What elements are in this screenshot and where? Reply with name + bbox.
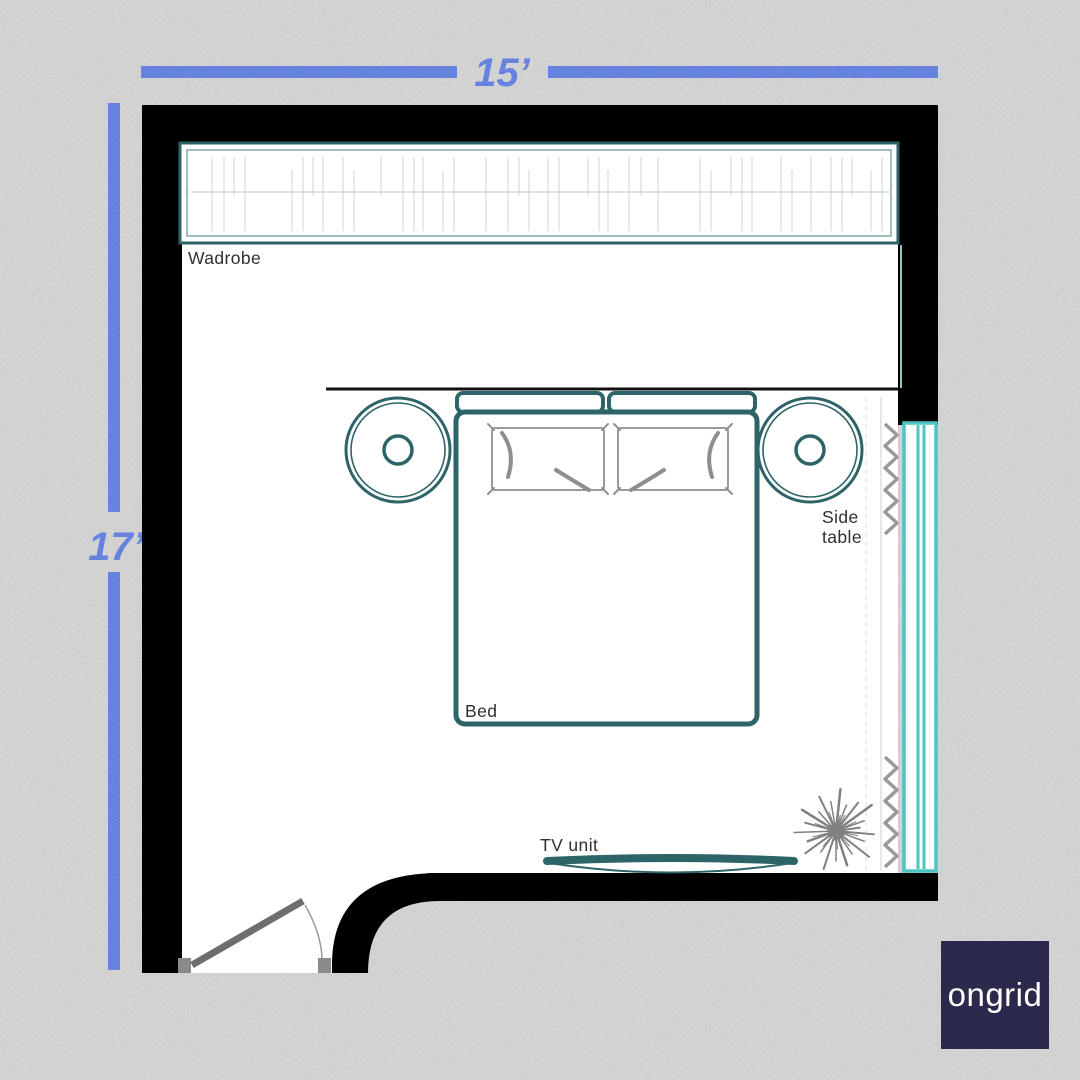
wall-bottom bbox=[428, 873, 938, 901]
side-table-left bbox=[346, 398, 450, 502]
logo: ongrid bbox=[941, 941, 1049, 1049]
side-table-left-knob bbox=[384, 436, 412, 464]
floorplan-canvas: 15’ 17’ Wadrobe bbox=[0, 0, 1080, 1080]
side-table-right bbox=[758, 398, 862, 502]
pillow-right bbox=[618, 428, 728, 490]
tv-unit-label: TV unit bbox=[540, 835, 598, 855]
wall-left bbox=[142, 105, 182, 973]
side-table-right-knob bbox=[796, 436, 824, 464]
tv-unit-top bbox=[547, 858, 794, 861]
door-jamb-left bbox=[178, 958, 191, 973]
bed-label: Bed bbox=[465, 701, 497, 721]
logo-text: ongrid bbox=[948, 976, 1043, 1013]
wardrobe-outline bbox=[180, 143, 898, 243]
floorplan-svg: 15’ 17’ Wadrobe bbox=[0, 0, 1080, 1080]
wall-right bbox=[898, 105, 938, 425]
headboard-left bbox=[457, 393, 603, 412]
headboard-right bbox=[609, 393, 755, 412]
door-jamb-right bbox=[318, 958, 331, 973]
wall-top bbox=[142, 105, 938, 145]
wardrobe bbox=[180, 143, 898, 243]
pillow-left bbox=[492, 428, 604, 490]
floorplan: Wadrobe Side table bbox=[142, 105, 938, 973]
wardrobe-label: Wadrobe bbox=[188, 248, 261, 268]
window-frame bbox=[904, 423, 936, 871]
side-table-label-line1: Side bbox=[822, 507, 859, 527]
window bbox=[904, 423, 936, 871]
bed bbox=[456, 393, 757, 724]
side-table-label-line2: table bbox=[822, 527, 862, 547]
